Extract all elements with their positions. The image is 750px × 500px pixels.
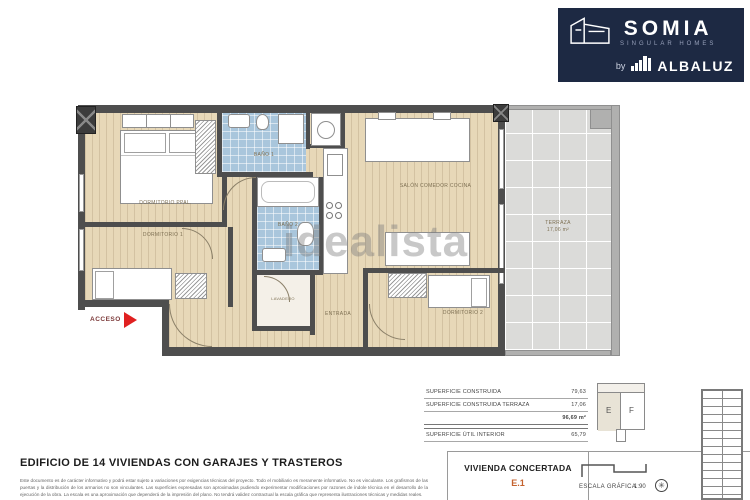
area-label: SUPERFICIE CONSTRUIDA: [426, 389, 501, 395]
area-label: SUPERFICIE CONSTRUIDA TERRAZA: [426, 402, 530, 408]
shower: [278, 114, 304, 144]
chair: [378, 112, 396, 120]
albaluz-bars-icon: [631, 56, 651, 76]
washer-icon: [317, 121, 335, 139]
window-left-1: [79, 174, 84, 212]
room-label-entrada: ENTRADA: [303, 311, 373, 318]
vivienda-code: E.1: [448, 478, 588, 488]
terrace-parapet-right: [611, 105, 620, 356]
table-total-row: 96,69 m²: [424, 412, 588, 424]
terraza-area: 17,06 m²: [547, 227, 569, 233]
table-row: SUPERFICIE CONSTRUIDA TERRAZA 17,06: [424, 399, 588, 412]
kitchen-sink: [327, 154, 343, 176]
logo-by: by: [616, 61, 626, 71]
brand-name: SOMIA: [624, 18, 713, 39]
scale-value: 1:90: [634, 484, 646, 490]
area-label: SUPERFICIE ÚTIL INTERIOR: [426, 432, 505, 438]
utility-closet: [311, 113, 341, 146]
wardrobe: [388, 273, 427, 298]
terrace-parapet-notch: [590, 109, 612, 129]
scale-label: ESCALA GRÁFICA: [579, 484, 636, 490]
wall-lavadero-bottom: [252, 326, 315, 331]
room-label-salon: SALÓN COMEDOR COCINA: [373, 183, 498, 190]
room-label-bano1: BAÑO 1: [227, 152, 301, 159]
keyplan-unit-e: E: [606, 406, 611, 415]
wall-dorm2-left: [363, 273, 368, 347]
wall-dorm1-right: [228, 227, 233, 307]
bathtub: [257, 177, 319, 207]
footer-title: EDIFICIO DE 14 VIVIENDAS CON GARAJES Y T…: [20, 457, 343, 469]
access-label: ACCESO: [90, 316, 121, 323]
room-label-dorm-ppal: DORMITORIO PPAL.: [113, 200, 218, 207]
brand-logo: SOMIA SINGULAR HOMES by ALBALUZ: [558, 8, 744, 82]
vivienda-cell: VIVIENDA CONCERTADA E.1: [448, 452, 588, 500]
floorplan-page: { "logo": { "brand": "SOMIA", "tagline":…: [0, 0, 750, 500]
access-arrow-icon: [124, 312, 137, 328]
toilet: [256, 114, 269, 130]
total-area-value: 96,69 m²: [562, 415, 586, 421]
vivienda-title: VIVIENDA CONCERTADA: [448, 463, 588, 473]
area-value: 65,79: [571, 432, 586, 438]
single-bed: [92, 268, 172, 300]
headboard-cabinets: [122, 114, 194, 128]
keyplan-core: [616, 429, 626, 442]
compass-icon: ✳: [655, 479, 668, 492]
floor-plan: DORMITORIO PPAL. BAÑO 1 SALÓN COMEDOR CO…: [78, 104, 622, 356]
area-value: 79,63: [571, 389, 586, 395]
wardrobe: [175, 273, 207, 299]
areas-table: SUPERFICIE CONSTRUIDA 79,63 SUPERFICIE C…: [424, 386, 588, 442]
wall-dorm1-bottom: [78, 300, 169, 307]
room-label-dorm1: DORMITORIO 1: [108, 232, 218, 239]
partner-name: ALBALUZ: [657, 58, 734, 74]
wall-bottom: [162, 347, 505, 356]
scale-bar-icon: [580, 461, 650, 484]
pillar-icon: [493, 104, 509, 122]
room-label-lavadero: LAVADERO: [253, 296, 313, 301]
table-row: SUPERFICIE CONSTRUIDA 79,63: [424, 386, 588, 399]
wardrobe: [195, 120, 216, 174]
room-label-dorm2: DORMITORIO 2: [408, 310, 518, 317]
pillar-icon: [76, 106, 96, 134]
window-left-2: [79, 229, 84, 271]
terrace-parapet-bottom: [505, 350, 611, 356]
keyplan-unit-f: F: [629, 406, 634, 415]
key-plan: E F: [597, 383, 645, 430]
house-icon: [568, 14, 612, 51]
brand-tagline: SINGULAR HOMES: [620, 41, 716, 47]
watermark: idealista: [283, 220, 468, 264]
stair-section: [701, 389, 743, 500]
sink: [228, 114, 250, 128]
chair: [433, 112, 451, 120]
wall-dormppal-hall: [85, 222, 222, 227]
window-terrace-1: [499, 129, 504, 189]
single-bed: [428, 275, 490, 308]
footer-disclaimer: Este documento es de carácter informativ…: [20, 477, 428, 498]
table-row: SUPERFICIE ÚTIL INTERIOR 65,79: [424, 429, 588, 442]
wall-dorm2-top: [363, 268, 505, 273]
area-value: 17,06: [571, 402, 586, 408]
dining-table: [365, 118, 470, 162]
room-label-terraza: TERRAZA 17,06 m²: [515, 220, 601, 234]
